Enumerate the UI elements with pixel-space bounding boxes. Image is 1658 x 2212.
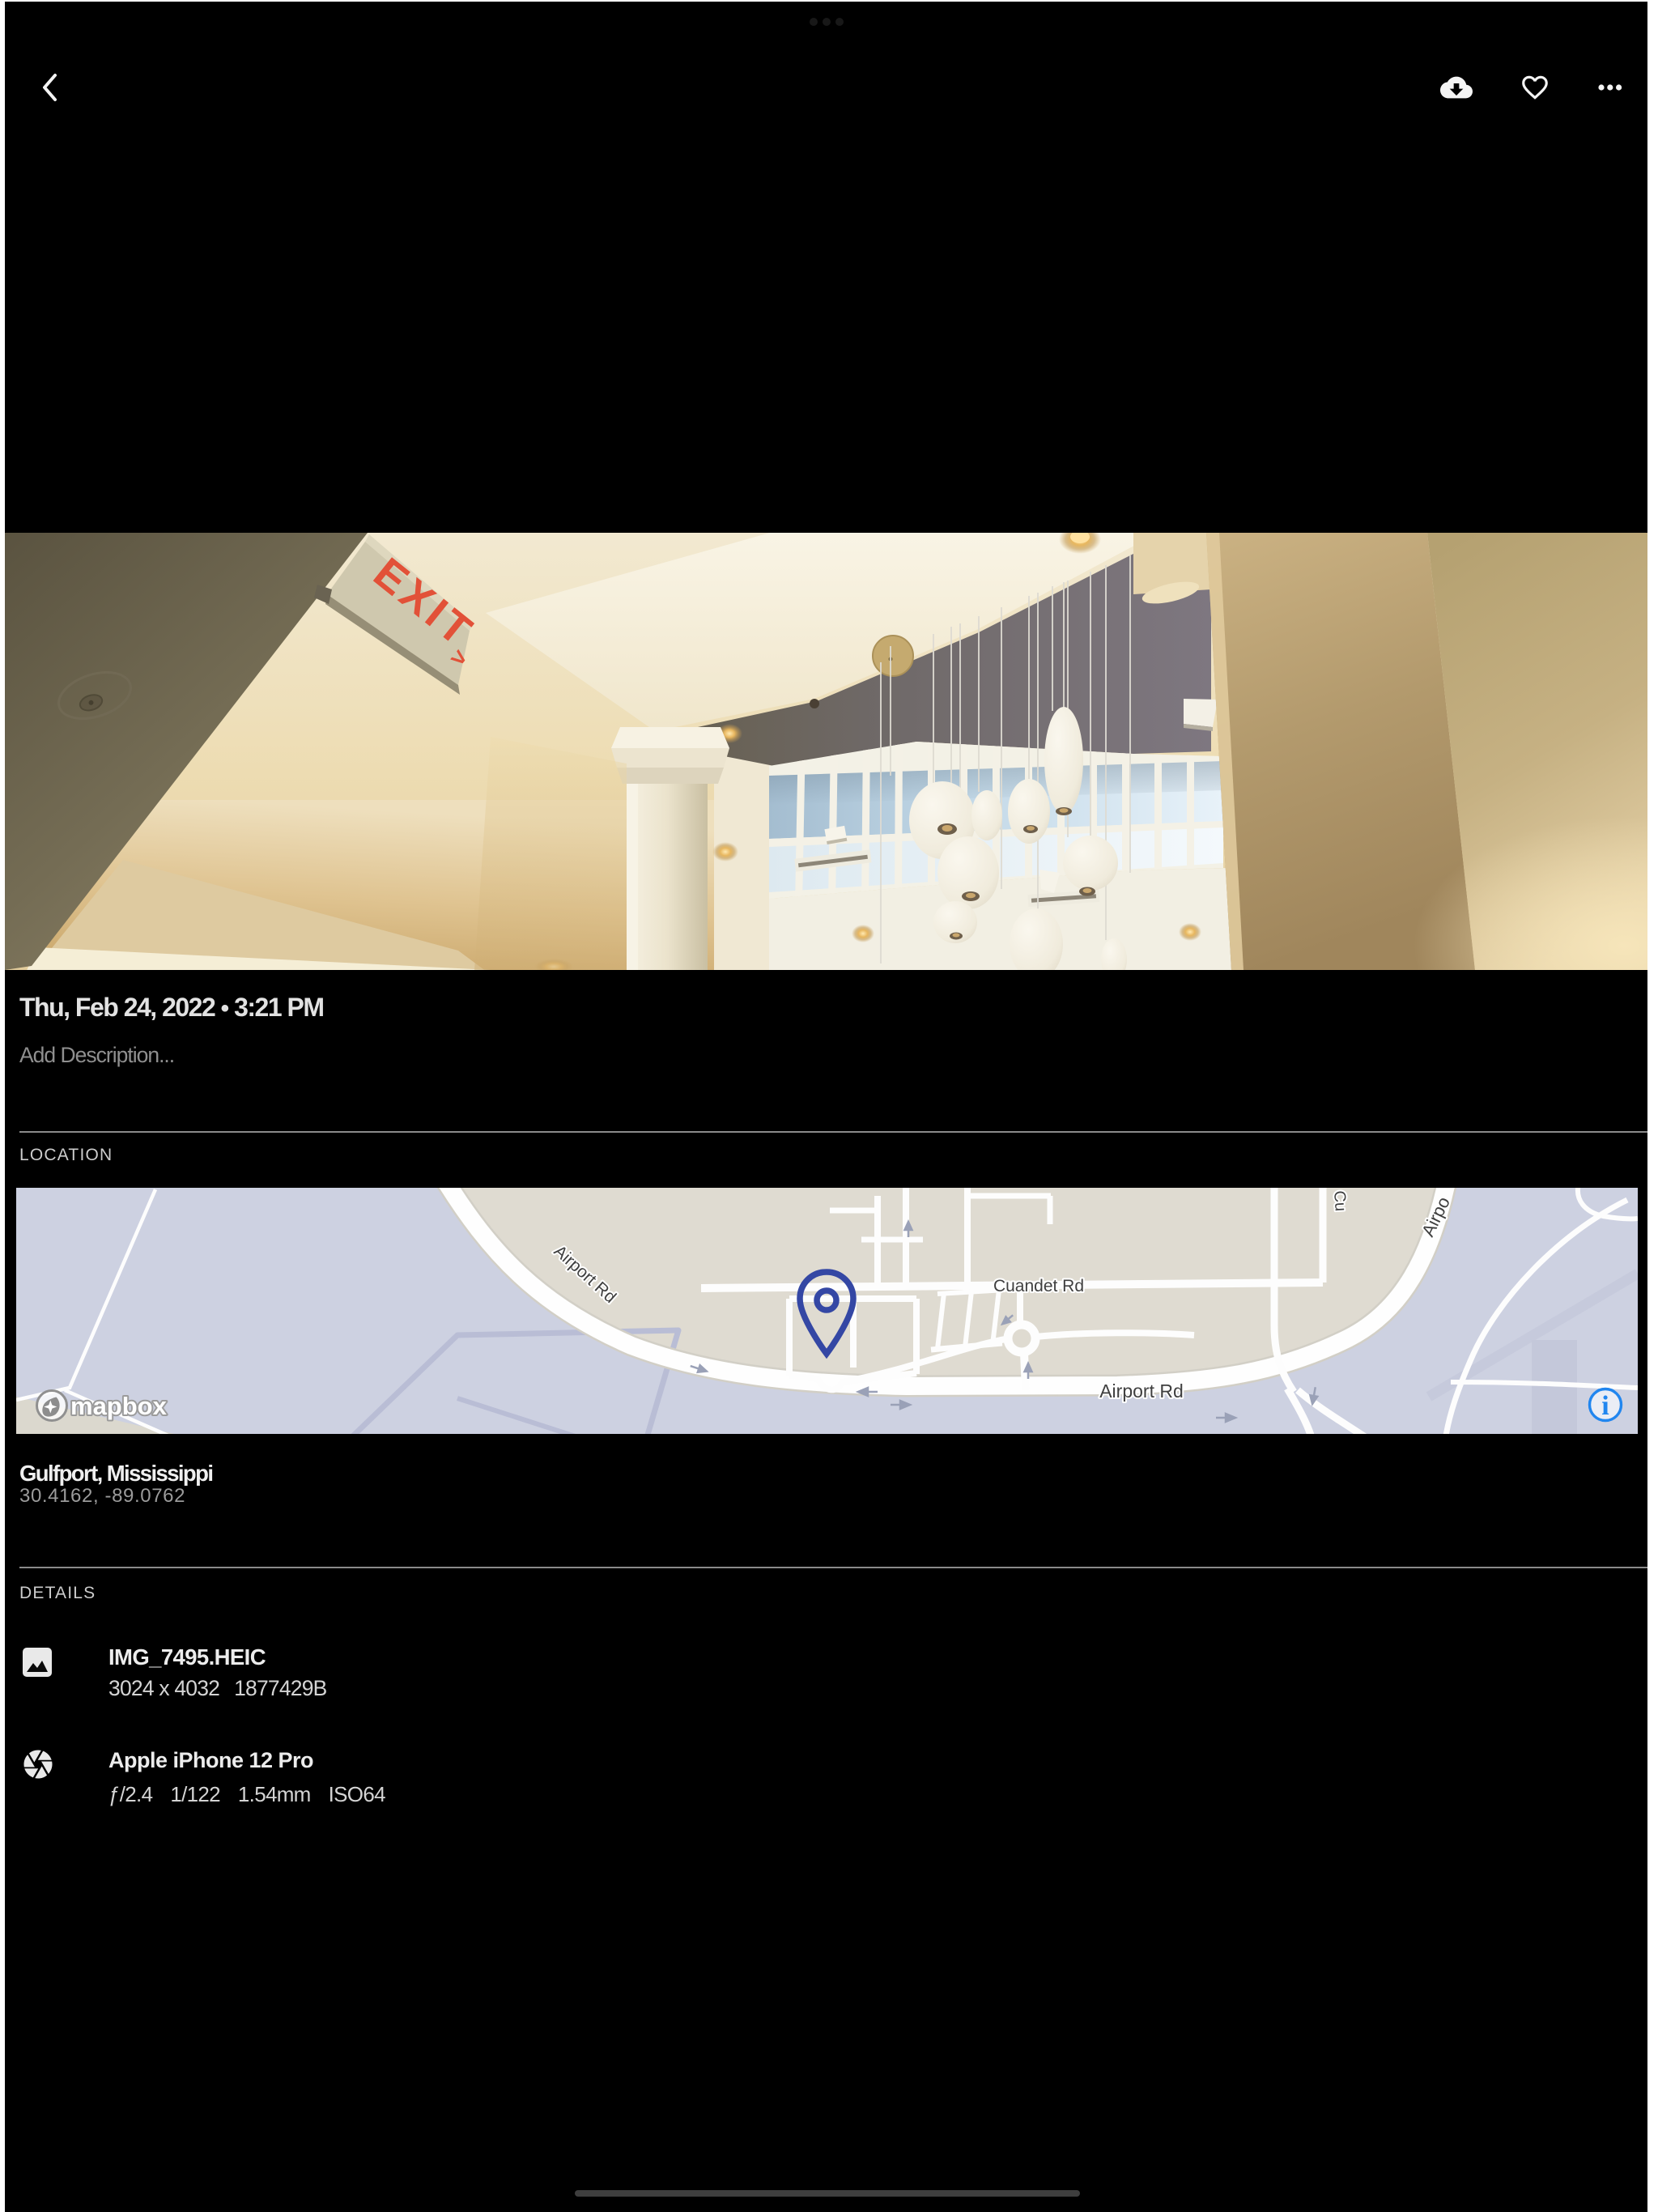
svg-text:Airport Rd: Airport Rd [1099,1380,1184,1402]
svg-text:i: i [1601,1391,1609,1421]
svg-text:Cu: Cu [1330,1190,1350,1212]
svg-text:Cuandet Rd: Cuandet Rd [993,1277,1084,1295]
svg-text:mapbox: mapbox [70,1392,168,1420]
